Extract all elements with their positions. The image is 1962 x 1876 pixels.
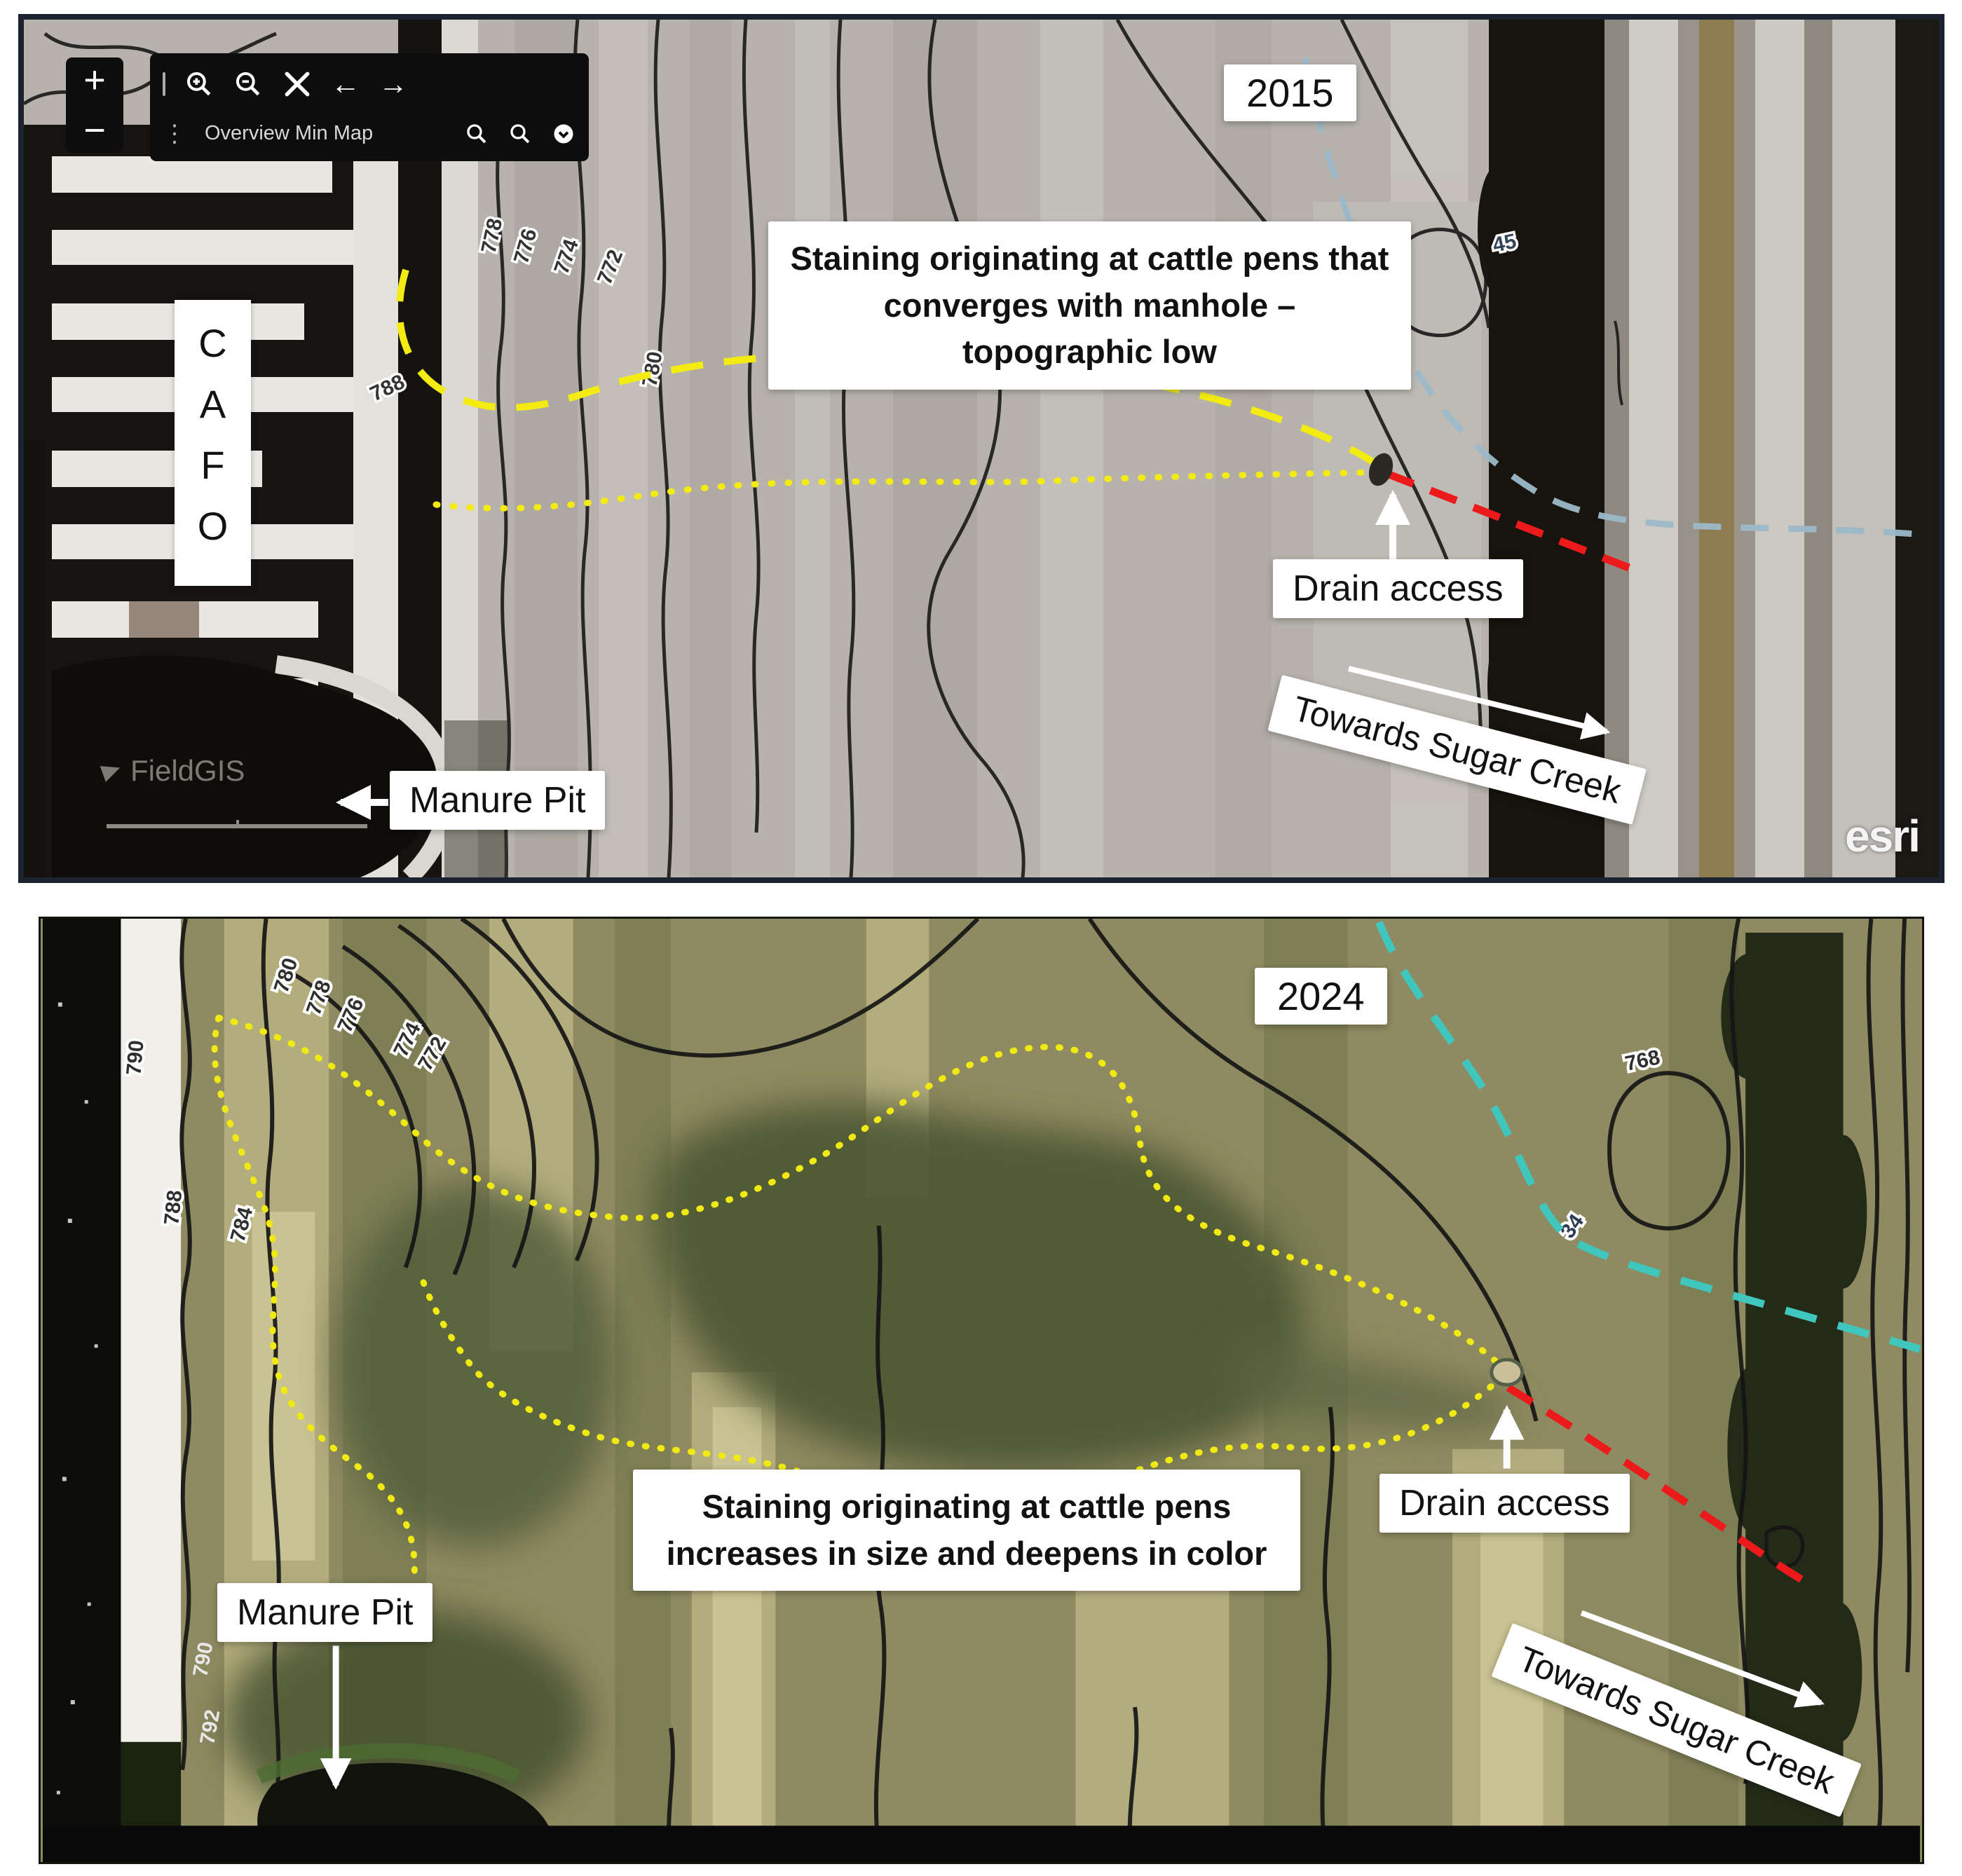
zoom-control[interactable]: + − <box>66 57 123 153</box>
year-label-2024: 2024 <box>1255 968 1387 1025</box>
zoom-out-magnifier-icon[interactable] <box>233 69 264 100</box>
map-panel-2015: 778 776 774 772 788 780 45 + <box>18 14 1944 883</box>
next-extent-icon[interactable]: → <box>379 69 408 99</box>
fieldgis-logo-icon <box>100 760 123 781</box>
map-toolbar: ← → ⋮ Overview Min Map <box>150 53 589 161</box>
previous-extent-icon[interactable]: ← <box>331 69 360 99</box>
bottom-black-strip <box>43 1826 1920 1862</box>
fieldgis-watermark: FieldGIS <box>102 754 245 788</box>
drag-handle-icon[interactable] <box>163 72 165 96</box>
drain-access-label: Drain access <box>1273 559 1523 618</box>
manure-pit-label: Manure Pit <box>390 771 605 830</box>
cafo-label: CAFO <box>175 300 251 586</box>
svg-text:788: 788 <box>160 1189 186 1226</box>
zoom-in-button[interactable]: + <box>79 60 110 100</box>
scale-bar <box>107 824 367 828</box>
magnifier-icon[interactable] <box>464 121 489 146</box>
svg-text:768: 768 <box>1623 1046 1662 1076</box>
year-label-2015: 2015 <box>1224 64 1356 121</box>
fieldgis-text: FieldGIS <box>130 754 245 788</box>
left-tree-strip <box>43 919 181 1862</box>
map-panel-2024: 780 778 776 774 772 790 788 784 768 790 … <box>39 917 1924 1864</box>
drain-access-label: Drain access <box>1379 1474 1630 1533</box>
chevron-circle-icon[interactable] <box>551 121 576 146</box>
zoom-out-button[interactable]: − <box>79 111 110 150</box>
svg-text:45: 45 <box>1491 230 1519 257</box>
magnifier-icon[interactable] <box>507 121 533 146</box>
overview-map-label: Overview Min Map <box>205 122 446 145</box>
svg-text:790: 790 <box>122 1039 148 1076</box>
staining-note-2015: Staining originating at cattle pens that… <box>768 221 1411 390</box>
manure-pit-label: Manure Pit <box>217 1583 432 1642</box>
svg-text:792: 792 <box>196 1708 224 1746</box>
figure-page: { "colors": { "annotation_yellow": "#f3e… <box>0 0 1962 1876</box>
esri-watermark: esri <box>1845 810 1919 862</box>
drain-access-point <box>1492 1360 1522 1385</box>
toolbar-row-1: ← → <box>163 69 576 100</box>
staining-note-2024: Staining originating at cattle pens incr… <box>633 1470 1300 1591</box>
zoom-in-magnifier-icon[interactable] <box>184 69 214 100</box>
road <box>1605 20 1939 877</box>
kebab-menu-icon[interactable]: ⋮ <box>163 122 186 146</box>
svg-text:790: 790 <box>189 1641 217 1679</box>
toolbar-row-2: ⋮ Overview Min Map <box>163 121 576 146</box>
extent-cross-icon[interactable] <box>282 69 313 100</box>
